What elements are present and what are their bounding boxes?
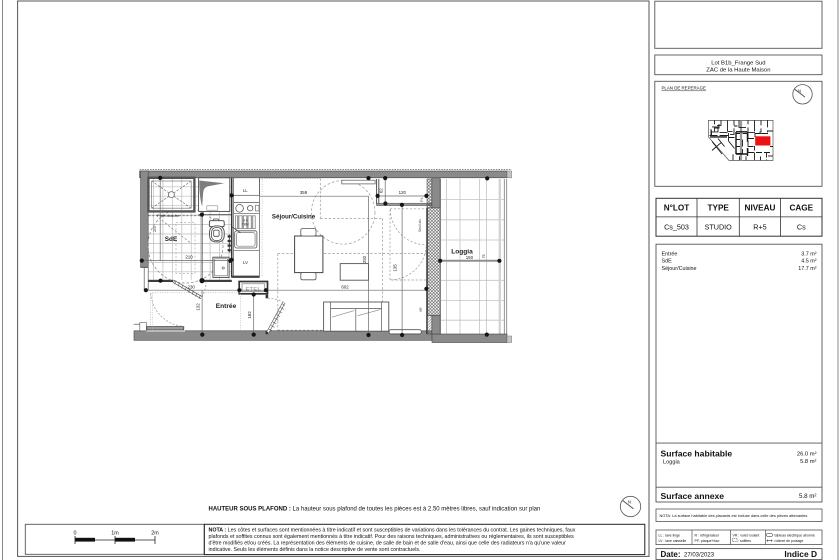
svg-text:LV : lave vaisselle: LV : lave vaisselle	[659, 539, 687, 543]
svg-text:Lot B1b_Frange Sud: Lot B1b_Frange Sud	[711, 60, 765, 66]
svg-text:d'être modifiés et/ou créés. L: d'être modifiés et/ou créés. La représen…	[209, 540, 567, 546]
svg-text:N: N	[628, 499, 631, 504]
svg-text:602: 602	[341, 285, 349, 290]
svg-text:135: 135	[393, 264, 398, 272]
svg-text:STUDIO: STUDIO	[705, 222, 733, 231]
svg-text:Seuil alu: Seuil alu	[418, 219, 422, 232]
svg-text:NOTA : Les côtes et surfaces s: NOTA : Les côtes et surfaces sont mentio…	[209, 528, 576, 534]
svg-text:182: 182	[247, 311, 252, 319]
svg-text:5.8 m²: 5.8 m²	[800, 459, 816, 465]
svg-text:Séjour/Cuisine: Séjour/Cuisine	[272, 214, 316, 221]
svg-text:N°LOT: N°LOT	[664, 204, 690, 213]
svg-text:SdE: SdE	[662, 259, 673, 265]
svg-text:230: 230	[188, 285, 196, 290]
svg-text:210: 210	[185, 254, 193, 259]
svg-text:Indice D: Indice D	[784, 549, 817, 559]
svg-text:LL : lave linge: LL : lave linge	[659, 533, 681, 537]
svg-text:tableau électrique abonné: tableau électrique abonné	[775, 533, 815, 537]
svg-text:4.5 m²: 4.5 m²	[801, 259, 816, 265]
svg-text:Cs: Cs	[797, 222, 806, 231]
svg-text:VR: VR	[419, 307, 423, 312]
svg-text:120: 120	[399, 190, 407, 195]
svg-text:CAGE: CAGE	[789, 204, 813, 213]
svg-text:Date:: Date:	[661, 550, 681, 559]
svg-text:SdE: SdE	[165, 236, 178, 243]
svg-text:Entrée: Entrée	[216, 303, 237, 310]
svg-text:Séjour/Cuisine: Séjour/Cuisine	[662, 266, 697, 272]
svg-text:PLAN DE REPERAGE: PLAN DE REPERAGE	[662, 86, 706, 91]
svg-text:75: 75	[482, 254, 486, 258]
svg-text:3.7 m²: 3.7 m²	[801, 251, 816, 257]
svg-text:1m: 1m	[111, 531, 119, 537]
svg-text:LV: LV	[243, 260, 248, 265]
svg-text:PL: PL	[419, 196, 424, 202]
svg-text:NIVEAU: NIVEAU	[745, 204, 776, 213]
svg-text:TBM: TBM	[242, 223, 249, 227]
svg-text:plafonds et soffites connus so: plafonds et soffites connus sont égaleme…	[209, 534, 575, 540]
svg-text:VR : volet roulant: VR : volet roulant	[733, 533, 760, 537]
svg-text:359: 359	[300, 190, 308, 195]
svg-text:R : réfrigérateur: R : réfrigérateur	[695, 533, 720, 537]
svg-text:ETEL: ETEL	[245, 287, 261, 293]
svg-text:26.0 m²: 26.0 m²	[797, 452, 817, 458]
svg-text:27/03/2023: 27/03/2023	[684, 553, 715, 559]
svg-text:ZAC de la Haute Maison: ZAC de la Haute Maison	[706, 67, 770, 73]
svg-text:Cs_503: Cs_503	[664, 222, 689, 231]
svg-text:292: 292	[362, 255, 367, 263]
svg-text:robinet de puisage: robinet de puisage	[775, 539, 804, 543]
svg-text:Surface annexe: Surface annexe	[661, 491, 725, 501]
svg-text:5.8 m²: 5.8 m²	[799, 493, 817, 500]
svg-text:R+5: R+5	[753, 222, 766, 231]
svg-text:TYPE: TYPE	[708, 204, 730, 213]
svg-text:2m: 2m	[151, 531, 159, 537]
svg-text:NOTA: La surface habitable de: NOTA: La surface habitable des placards …	[660, 513, 808, 518]
svg-text:205: 205	[153, 226, 157, 232]
svg-text:62: 62	[379, 188, 384, 193]
svg-text:PF: plaque+four: PF: plaque+four	[695, 539, 721, 543]
svg-text:HAUTEUR SOUS PLAFOND : La haut: HAUTEUR SOUS PLAFOND : La hauteur sous p…	[209, 506, 541, 512]
svg-text:17.7 m²: 17.7 m²	[798, 266, 816, 272]
svg-text:: soffites: : soffites	[738, 539, 751, 543]
svg-text:Loggia: Loggia	[663, 460, 681, 466]
svg-text:LL: LL	[243, 188, 248, 193]
svg-text:150: 150	[466, 255, 474, 260]
svg-text:Surface habitable: Surface habitable	[661, 448, 733, 458]
svg-text:0: 0	[74, 531, 77, 537]
svg-text:Entrée: Entrée	[662, 251, 678, 257]
svg-text:indicative. Seuls les éléments: indicative. Seuls les éléments définis d…	[209, 547, 421, 553]
svg-text:132: 132	[196, 303, 201, 311]
